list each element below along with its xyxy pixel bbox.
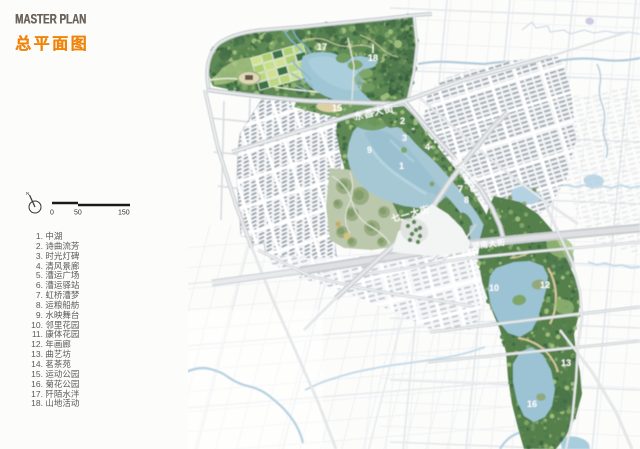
svg-text:9: 9 <box>367 145 372 155</box>
svg-text:7: 7 <box>458 184 463 194</box>
svg-text:4: 4 <box>425 142 430 152</box>
svg-text:15: 15 <box>332 103 342 113</box>
svg-text:5: 5 <box>464 176 469 186</box>
svg-text:1: 1 <box>399 161 404 171</box>
svg-text:16: 16 <box>527 399 537 409</box>
svg-text:8: 8 <box>464 195 469 205</box>
svg-text:50: 50 <box>74 210 82 217</box>
svg-text:150: 150 <box>118 210 130 217</box>
svg-text:18: 18 <box>368 53 378 63</box>
svg-text:10: 10 <box>489 283 499 293</box>
svg-text:6: 6 <box>470 184 475 194</box>
svg-text:13: 13 <box>561 358 571 368</box>
svg-text:12: 12 <box>540 280 550 290</box>
svg-text:0: 0 <box>50 210 54 217</box>
svg-text:17: 17 <box>317 42 327 52</box>
svg-text:N: N <box>26 191 29 196</box>
svg-text:3: 3 <box>402 133 407 143</box>
svg-text:2: 2 <box>400 116 405 126</box>
